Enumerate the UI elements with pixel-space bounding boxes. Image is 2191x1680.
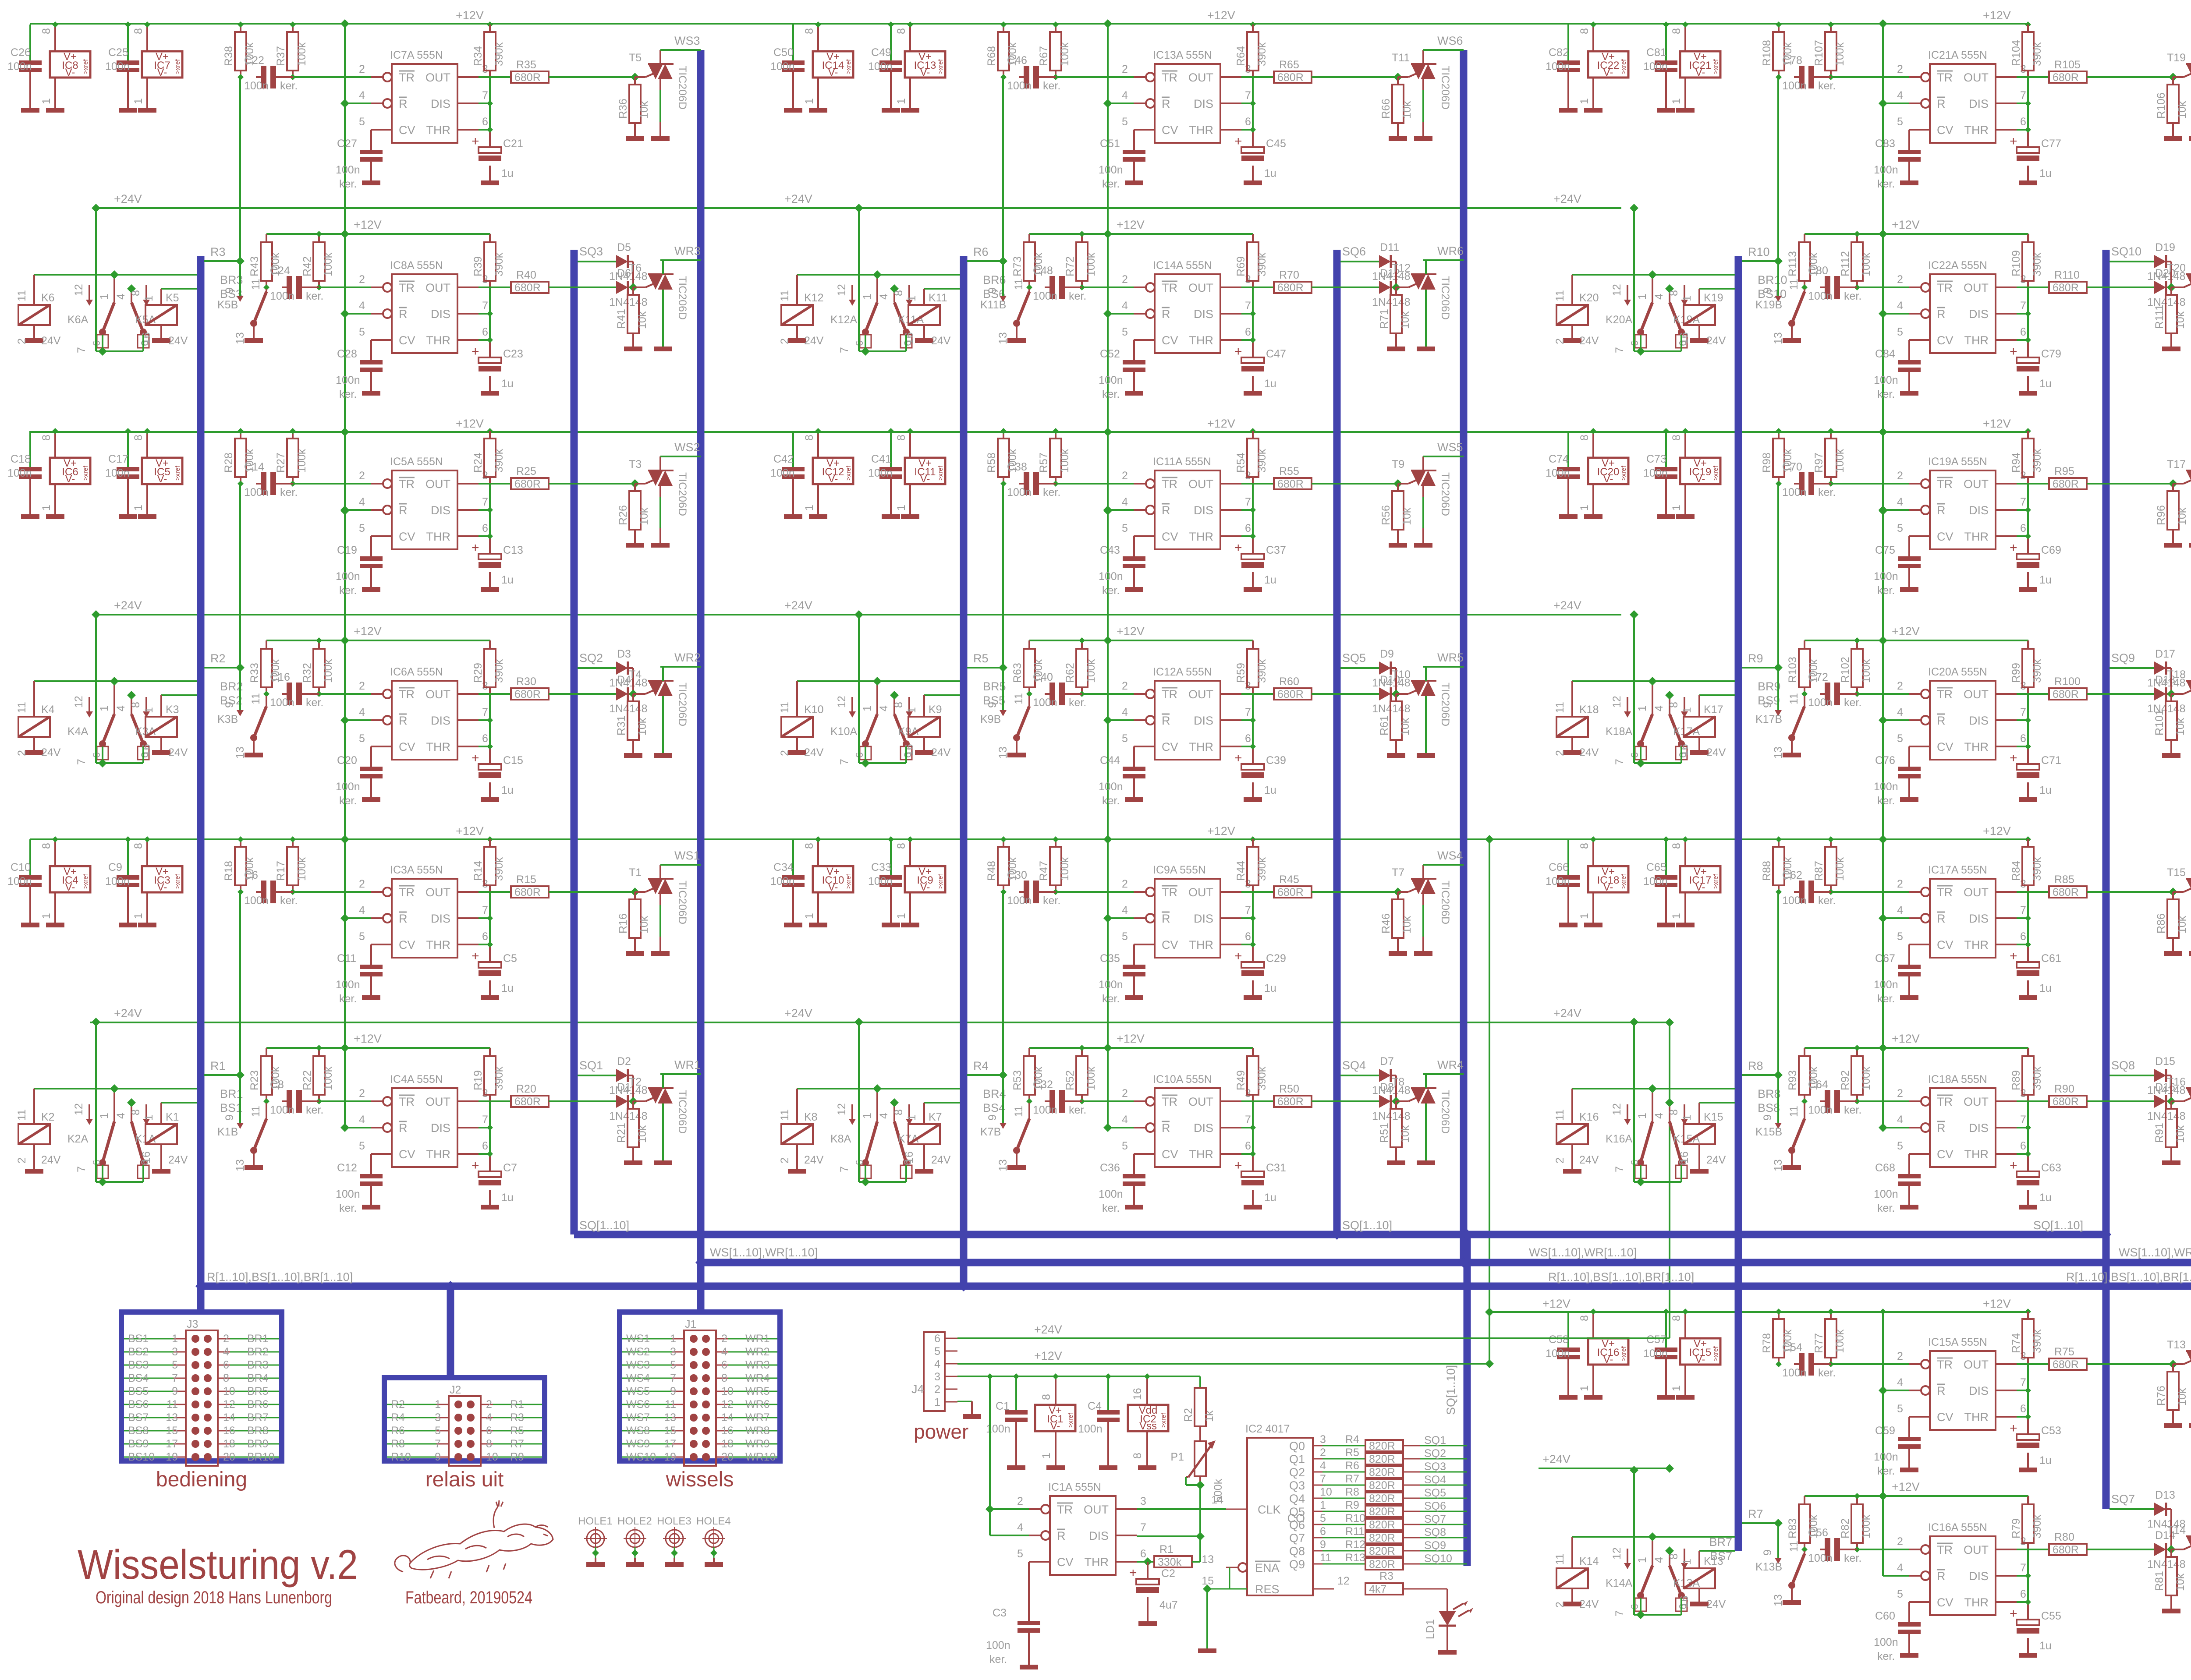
svg-text:100k: 100k	[1860, 252, 1872, 276]
svg-text:CV: CV	[1162, 124, 1178, 137]
svg-text:C14: C14	[244, 461, 264, 473]
svg-text:+12V: +12V	[1892, 1480, 1920, 1493]
svg-text:390k: 390k	[1256, 42, 1268, 66]
svg-text:5: 5	[1122, 1140, 1128, 1152]
svg-text:R: R	[399, 308, 408, 321]
svg-text:>xref: >xref	[937, 465, 944, 481]
svg-text:R: R	[1937, 714, 1946, 727]
svg-text:C38: C38	[1007, 461, 1027, 473]
svg-text:R: R	[1937, 1570, 1946, 1583]
svg-text:2: 2	[1122, 680, 1128, 692]
svg-text:10k: 10k	[1401, 101, 1413, 119]
svg-text:R10: R10	[1748, 245, 1770, 258]
svg-text:C68: C68	[1875, 1162, 1895, 1174]
svg-text:DIS: DIS	[1194, 308, 1213, 321]
svg-text:C32: C32	[1033, 1079, 1053, 1091]
svg-text:V-: V-	[828, 881, 838, 893]
svg-text:R59: R59	[1235, 663, 1247, 683]
svg-text:100n: 100n	[336, 570, 360, 583]
svg-text:V-: V-	[920, 67, 930, 78]
svg-text:ker.: ker.	[1877, 584, 1895, 597]
svg-text:BR6: BR6	[247, 1398, 269, 1411]
svg-text:V-: V-	[1603, 1354, 1613, 1365]
svg-text:ker.: ker.	[306, 290, 323, 302]
svg-text:5: 5	[359, 1140, 365, 1152]
svg-text:SQ4: SQ4	[1424, 1474, 1446, 1486]
svg-text:4: 4	[115, 705, 127, 711]
svg-text:>xref: >xref	[1712, 465, 1719, 481]
svg-text:13: 13	[234, 1159, 246, 1171]
svg-text:K20: K20	[1579, 292, 1599, 304]
svg-text:BS1: BS1	[128, 1333, 149, 1345]
svg-text:100k: 100k	[1860, 659, 1872, 683]
svg-text:R74: R74	[2010, 1333, 2022, 1353]
svg-text:C18: C18	[11, 453, 31, 465]
svg-text:2: 2	[16, 338, 28, 344]
svg-text:680R: 680R	[1277, 886, 1304, 898]
svg-text:+12V: +12V	[456, 417, 484, 430]
svg-text:100k: 100k	[296, 857, 308, 881]
svg-text:1u: 1u	[2039, 574, 2052, 586]
svg-text:TR: TR	[1937, 1358, 1953, 1371]
svg-text:1: 1	[895, 913, 908, 919]
svg-text:R34: R34	[472, 46, 484, 66]
svg-text:C27: C27	[337, 138, 357, 150]
svg-text:K9B: K9B	[980, 713, 1001, 725]
svg-text:SQ3: SQ3	[579, 245, 603, 258]
svg-text:12: 12	[1611, 696, 1623, 708]
svg-text:24V: 24V	[168, 1154, 188, 1166]
svg-text:8: 8	[132, 843, 145, 849]
svg-text:BR10: BR10	[1758, 273, 1787, 286]
svg-text:1: 1	[1636, 705, 1649, 711]
svg-text:3: 3	[670, 1346, 676, 1358]
svg-text:13: 13	[997, 746, 1009, 759]
svg-text:100n: 100n	[270, 697, 294, 709]
svg-text:24V: 24V	[1579, 1598, 1599, 1610]
svg-text:THR: THR	[426, 1148, 451, 1161]
svg-text:K9: K9	[929, 704, 942, 716]
svg-text:R49: R49	[1235, 1070, 1247, 1090]
svg-text:100k: 100k	[322, 252, 334, 276]
svg-text:DIS: DIS	[431, 1121, 450, 1135]
svg-text:7: 7	[838, 759, 851, 765]
svg-text:OUT: OUT	[1188, 477, 1213, 491]
svg-text:CV: CV	[399, 124, 415, 137]
svg-text:BR1: BR1	[247, 1333, 269, 1345]
svg-text:4: 4	[1897, 1114, 1903, 1126]
svg-text:TR: TR	[1937, 71, 1953, 84]
svg-text:K3: K3	[166, 704, 179, 716]
svg-text:9: 9	[435, 1451, 441, 1463]
svg-text:>xref: >xref	[1067, 1412, 1074, 1428]
svg-text:17: 17	[664, 1438, 676, 1450]
svg-text:RES: RES	[1255, 1583, 1280, 1596]
svg-text:HOLE4: HOLE4	[696, 1515, 731, 1527]
svg-text:J4: J4	[911, 1383, 924, 1396]
svg-text:2: 2	[1320, 1447, 1326, 1459]
svg-text:C44: C44	[1100, 754, 1120, 767]
svg-text:D9: D9	[1380, 648, 1394, 660]
svg-text:R109: R109	[2010, 250, 2022, 276]
svg-text:820R: 820R	[1369, 1532, 1395, 1544]
svg-text:K2: K2	[41, 1111, 55, 1123]
svg-text:11: 11	[1554, 290, 1566, 301]
svg-text:100n: 100n	[1874, 1451, 1898, 1463]
svg-text:R79: R79	[2010, 1518, 2022, 1539]
svg-text:>xref: >xref	[1160, 1412, 1167, 1428]
svg-text:C33: C33	[871, 861, 891, 874]
svg-text:1: 1	[906, 295, 918, 301]
svg-text:8: 8	[132, 435, 145, 441]
svg-text:R84: R84	[2010, 861, 2022, 881]
svg-text:CV: CV	[1937, 124, 1953, 137]
svg-text:1: 1	[1578, 1385, 1591, 1391]
svg-text:1: 1	[132, 913, 145, 919]
svg-text:R70: R70	[1279, 269, 1299, 281]
svg-text:C64: C64	[1808, 1079, 1828, 1091]
svg-text:24V: 24V	[1579, 335, 1599, 347]
svg-text:R83: R83	[1787, 1518, 1799, 1539]
svg-text:R46: R46	[1380, 913, 1392, 934]
svg-text:ENA: ENA	[1255, 1561, 1280, 1574]
svg-text:R36: R36	[617, 99, 629, 119]
svg-text:100n: 100n	[1874, 1636, 1898, 1648]
svg-text:1: 1	[803, 913, 815, 919]
svg-text:IC20A 555N: IC20A 555N	[1928, 666, 1987, 678]
svg-text:C80: C80	[1808, 265, 1828, 277]
svg-text:16: 16	[1678, 332, 1691, 344]
svg-text:R: R	[1162, 97, 1170, 110]
svg-text:13: 13	[1772, 746, 1784, 759]
svg-text:D17: D17	[2155, 648, 2175, 660]
svg-text:19: 19	[664, 1451, 676, 1463]
svg-text:+12V: +12V	[456, 9, 484, 22]
svg-text:1u: 1u	[501, 982, 514, 994]
svg-text:THR: THR	[1189, 938, 1214, 951]
svg-text:>xref: >xref	[1620, 1346, 1627, 1361]
svg-text:100k: 100k	[296, 449, 308, 473]
svg-text:CV: CV	[399, 938, 415, 951]
svg-text:R97: R97	[1813, 453, 1825, 473]
svg-text:OUT: OUT	[425, 886, 450, 899]
svg-text:+12V: +12V	[1117, 218, 1145, 231]
svg-text:12: 12	[836, 696, 848, 708]
svg-text:R102: R102	[1839, 657, 1851, 683]
svg-text:R[1..10],BS[1..10],BR[1..10]: R[1..10],BS[1..10],BR[1..10]	[1548, 1270, 1694, 1284]
svg-text:1: 1	[1578, 98, 1591, 104]
svg-text:R9: R9	[1345, 1499, 1359, 1511]
svg-text:TIC206D: TIC206D	[676, 1090, 688, 1134]
svg-text:1: 1	[934, 1396, 940, 1408]
svg-text:10k: 10k	[1399, 718, 1411, 736]
svg-text:T1: T1	[629, 867, 642, 879]
svg-text:24V: 24V	[931, 335, 951, 347]
svg-text:BR4: BR4	[247, 1372, 269, 1384]
svg-text:100n: 100n	[1643, 60, 1668, 73]
svg-text:5: 5	[670, 1359, 676, 1371]
svg-text:6: 6	[721, 1359, 727, 1371]
svg-text:R8: R8	[391, 1438, 405, 1450]
svg-text:100n: 100n	[7, 60, 32, 73]
svg-text:R111: R111	[2153, 304, 2166, 329]
svg-text:BR7: BR7	[247, 1411, 269, 1424]
svg-text:C17: C17	[108, 453, 128, 465]
svg-text:7: 7	[838, 347, 851, 353]
svg-text:OUT: OUT	[1084, 1503, 1109, 1516]
svg-text:2: 2	[1122, 273, 1128, 286]
svg-text:24V: 24V	[804, 746, 824, 759]
svg-text:4: 4	[1897, 300, 1903, 312]
svg-text:J3: J3	[187, 1318, 198, 1330]
svg-text:7: 7	[1320, 1473, 1326, 1485]
svg-text:4: 4	[1897, 1376, 1903, 1389]
svg-text:Q4: Q4	[1289, 1492, 1305, 1505]
svg-text:7: 7	[670, 1372, 676, 1384]
svg-text:7: 7	[1245, 300, 1251, 312]
svg-text:WR5: WR5	[1437, 651, 1464, 664]
svg-text:>xref: >xref	[1712, 874, 1719, 889]
svg-text:100n: 100n	[1874, 1188, 1898, 1200]
svg-text:+12V: +12V	[456, 824, 484, 838]
svg-text:7: 7	[482, 496, 488, 508]
svg-text:C41: C41	[871, 453, 891, 465]
svg-text:+12V: +12V	[354, 625, 382, 638]
svg-text:1: 1	[1670, 913, 1683, 919]
svg-text:680R: 680R	[2053, 282, 2079, 294]
svg-text:R22: R22	[301, 1070, 313, 1090]
svg-text:R51: R51	[1378, 1123, 1390, 1143]
svg-text:R2: R2	[1182, 1408, 1195, 1422]
svg-text:>xref: >xref	[1712, 1346, 1719, 1361]
svg-text:10k: 10k	[638, 916, 650, 934]
svg-text:100n: 100n	[1808, 1104, 1833, 1116]
svg-text:R32: R32	[301, 663, 313, 683]
svg-text:C11: C11	[337, 952, 356, 965]
svg-text:K15: K15	[1704, 1111, 1723, 1123]
svg-text:DIS: DIS	[1969, 1570, 1989, 1583]
svg-text:5: 5	[359, 326, 365, 338]
svg-text:13: 13	[234, 746, 246, 759]
svg-text:THR: THR	[1964, 334, 1989, 347]
svg-text:K7: K7	[929, 1111, 942, 1123]
svg-text:11: 11	[779, 702, 791, 713]
svg-text:13: 13	[997, 332, 1009, 344]
svg-text:R92: R92	[1839, 1070, 1851, 1090]
svg-text:ker.: ker.	[1102, 388, 1120, 400]
svg-text:100n: 100n	[7, 875, 32, 888]
svg-text:7: 7	[75, 759, 88, 765]
svg-text:8: 8	[130, 290, 142, 296]
svg-text:DIS: DIS	[431, 912, 450, 925]
svg-text:100n: 100n	[1546, 1348, 1570, 1360]
svg-text:K13B: K13B	[1755, 1561, 1782, 1573]
svg-text:680R: 680R	[2053, 1096, 2079, 1108]
svg-text:R13: R13	[1345, 1552, 1365, 1564]
svg-text:BS9: BS9	[128, 1438, 149, 1450]
svg-text:ker.: ker.	[1043, 486, 1060, 499]
svg-text:10: 10	[1320, 1486, 1332, 1498]
svg-text:100n: 100n	[336, 1188, 360, 1200]
svg-text:THR: THR	[426, 938, 451, 951]
svg-text:CV: CV	[1937, 740, 1953, 753]
svg-text:100n: 100n	[336, 374, 360, 386]
svg-text:V-: V-	[1050, 1420, 1060, 1432]
svg-text:R68: R68	[986, 46, 998, 66]
svg-text:K5: K5	[166, 292, 179, 304]
svg-text:8: 8	[40, 435, 53, 441]
svg-text:V-: V-	[65, 473, 75, 485]
svg-text:9: 9	[986, 1114, 999, 1121]
svg-text:2: 2	[1122, 470, 1128, 482]
svg-text:Fatbeard, 20190524: Fatbeard, 20190524	[405, 1588, 532, 1607]
svg-text:680R: 680R	[514, 886, 541, 898]
svg-text:15: 15	[664, 1425, 676, 1437]
svg-text:ker.: ker.	[306, 1104, 323, 1116]
svg-text:5: 5	[1122, 732, 1128, 745]
svg-text:R112: R112	[1839, 251, 1851, 276]
svg-text:390k: 390k	[493, 42, 505, 66]
svg-text:DIS: DIS	[431, 714, 450, 727]
svg-text:ker.: ker.	[1877, 1202, 1895, 1214]
svg-text:100n: 100n	[1099, 1188, 1123, 1200]
svg-text:13: 13	[1772, 332, 1784, 344]
svg-text:8: 8	[40, 843, 53, 849]
svg-text:IC13A 555N: IC13A 555N	[1153, 49, 1212, 61]
svg-text:R1: R1	[1159, 1543, 1173, 1556]
svg-text:100n: 100n	[770, 467, 795, 479]
svg-text:WS3: WS3	[674, 34, 700, 47]
svg-text:5: 5	[1897, 522, 1903, 534]
svg-text:R3: R3	[210, 245, 226, 258]
svg-text:THR: THR	[1085, 1556, 1109, 1569]
svg-text:C42: C42	[773, 453, 794, 465]
svg-text:C9: C9	[108, 861, 122, 874]
svg-text:ker.: ker.	[1818, 895, 1836, 907]
svg-text:C82: C82	[1549, 46, 1569, 59]
svg-text:T3: T3	[629, 458, 642, 470]
svg-text:bediening: bediening	[156, 1468, 247, 1491]
svg-text:T8: T8	[1392, 1076, 1404, 1088]
svg-text:10k: 10k	[1401, 916, 1413, 934]
svg-text:4: 4	[1122, 496, 1128, 508]
svg-text:12: 12	[73, 696, 85, 708]
svg-text:R30: R30	[516, 676, 536, 688]
svg-text:4u7: 4u7	[1159, 1599, 1178, 1611]
svg-text:18: 18	[721, 1438, 734, 1450]
svg-text:16: 16	[1678, 1595, 1691, 1608]
svg-text:8: 8	[895, 843, 908, 849]
svg-text:R31: R31	[615, 715, 628, 736]
svg-text:BS8: BS8	[1758, 1101, 1780, 1114]
svg-text:THR: THR	[1189, 124, 1214, 137]
svg-text:2: 2	[486, 1398, 492, 1411]
svg-text:2: 2	[1554, 1602, 1566, 1608]
svg-text:R: R	[399, 504, 408, 517]
svg-text:DIS: DIS	[1969, 1121, 1989, 1135]
svg-text:SQ8: SQ8	[2111, 1059, 2135, 1072]
svg-text:R9: R9	[1748, 652, 1763, 665]
svg-text:T15: T15	[2167, 867, 2186, 879]
svg-text:9: 9	[670, 1385, 676, 1397]
svg-text:DIS: DIS	[1969, 504, 1989, 517]
svg-text:OUT: OUT	[425, 1095, 450, 1108]
svg-text:R60: R60	[1279, 676, 1299, 688]
svg-text:CV: CV	[399, 530, 415, 543]
svg-text:10k: 10k	[638, 101, 650, 119]
svg-text:R106: R106	[2155, 92, 2167, 119]
svg-text:100n: 100n	[1546, 60, 1570, 73]
svg-text:C8: C8	[270, 1079, 284, 1091]
svg-text:100n: 100n	[868, 60, 893, 73]
svg-text:D11: D11	[1380, 241, 1399, 254]
svg-text:TR: TR	[1162, 71, 1177, 84]
svg-text:TR: TR	[1937, 688, 1953, 701]
svg-text:390k: 390k	[1256, 857, 1268, 881]
svg-text:WS3: WS3	[626, 1359, 650, 1371]
svg-text:BS4: BS4	[983, 1101, 1005, 1114]
svg-text:HOLE2: HOLE2	[617, 1515, 652, 1527]
svg-text:CV: CV	[1937, 1411, 1953, 1424]
svg-text:THR: THR	[1964, 1596, 1989, 1609]
svg-text:680R: 680R	[2053, 1544, 2079, 1556]
svg-text:390k: 390k	[2031, 1066, 2043, 1090]
svg-text:R11: R11	[1345, 1525, 1365, 1538]
svg-text:>xref: >xref	[174, 874, 181, 889]
svg-text:C24: C24	[270, 265, 290, 277]
svg-text:V-: V-	[1695, 881, 1705, 893]
svg-text:T18: T18	[2167, 668, 2186, 681]
svg-text:C79: C79	[2041, 348, 2061, 360]
svg-text:1u: 1u	[2039, 1192, 2052, 1204]
svg-text:8: 8	[1578, 843, 1591, 849]
svg-text:CV: CV	[399, 1148, 415, 1161]
svg-text:100k: 100k	[1860, 1514, 1872, 1539]
svg-text:16: 16	[903, 1151, 915, 1164]
svg-text:11: 11	[16, 290, 28, 301]
svg-text:WS10: WS10	[626, 1451, 656, 1463]
svg-text:OUT: OUT	[1964, 71, 1989, 84]
svg-text:+24V: +24V	[114, 192, 142, 205]
svg-text:4: 4	[115, 294, 127, 300]
svg-text:5: 5	[359, 116, 365, 128]
svg-text:1: 1	[40, 913, 53, 919]
svg-text:T12: T12	[1392, 262, 1411, 274]
svg-text:6: 6	[2020, 1140, 2026, 1152]
svg-text:C78: C78	[1782, 54, 1802, 67]
svg-text:OUT: OUT	[425, 477, 450, 491]
svg-text:2: 2	[721, 1333, 727, 1345]
svg-text:24V: 24V	[1579, 1154, 1599, 1166]
svg-text:TR: TR	[1937, 1543, 1953, 1556]
svg-text:10k: 10k	[2176, 507, 2188, 525]
svg-text:Q0: Q0	[1289, 1439, 1305, 1453]
svg-text:C48: C48	[1033, 265, 1053, 277]
svg-text:THR: THR	[426, 124, 451, 137]
svg-text:5: 5	[1122, 326, 1128, 338]
svg-text:C2: C2	[1161, 1567, 1175, 1580]
svg-text:Q5: Q5	[1289, 1505, 1305, 1518]
svg-text:ker.: ker.	[1844, 1104, 1861, 1116]
svg-text:K17: K17	[1704, 704, 1723, 716]
svg-text:R107: R107	[1813, 40, 1825, 66]
svg-text:1u: 1u	[1264, 574, 1276, 586]
svg-text:4: 4	[1017, 1521, 1023, 1534]
svg-text:relais uit: relais uit	[425, 1468, 504, 1491]
svg-text:TR: TR	[399, 1095, 415, 1108]
svg-text:390k: 390k	[2031, 42, 2043, 66]
svg-text:1: 1	[1670, 98, 1683, 104]
